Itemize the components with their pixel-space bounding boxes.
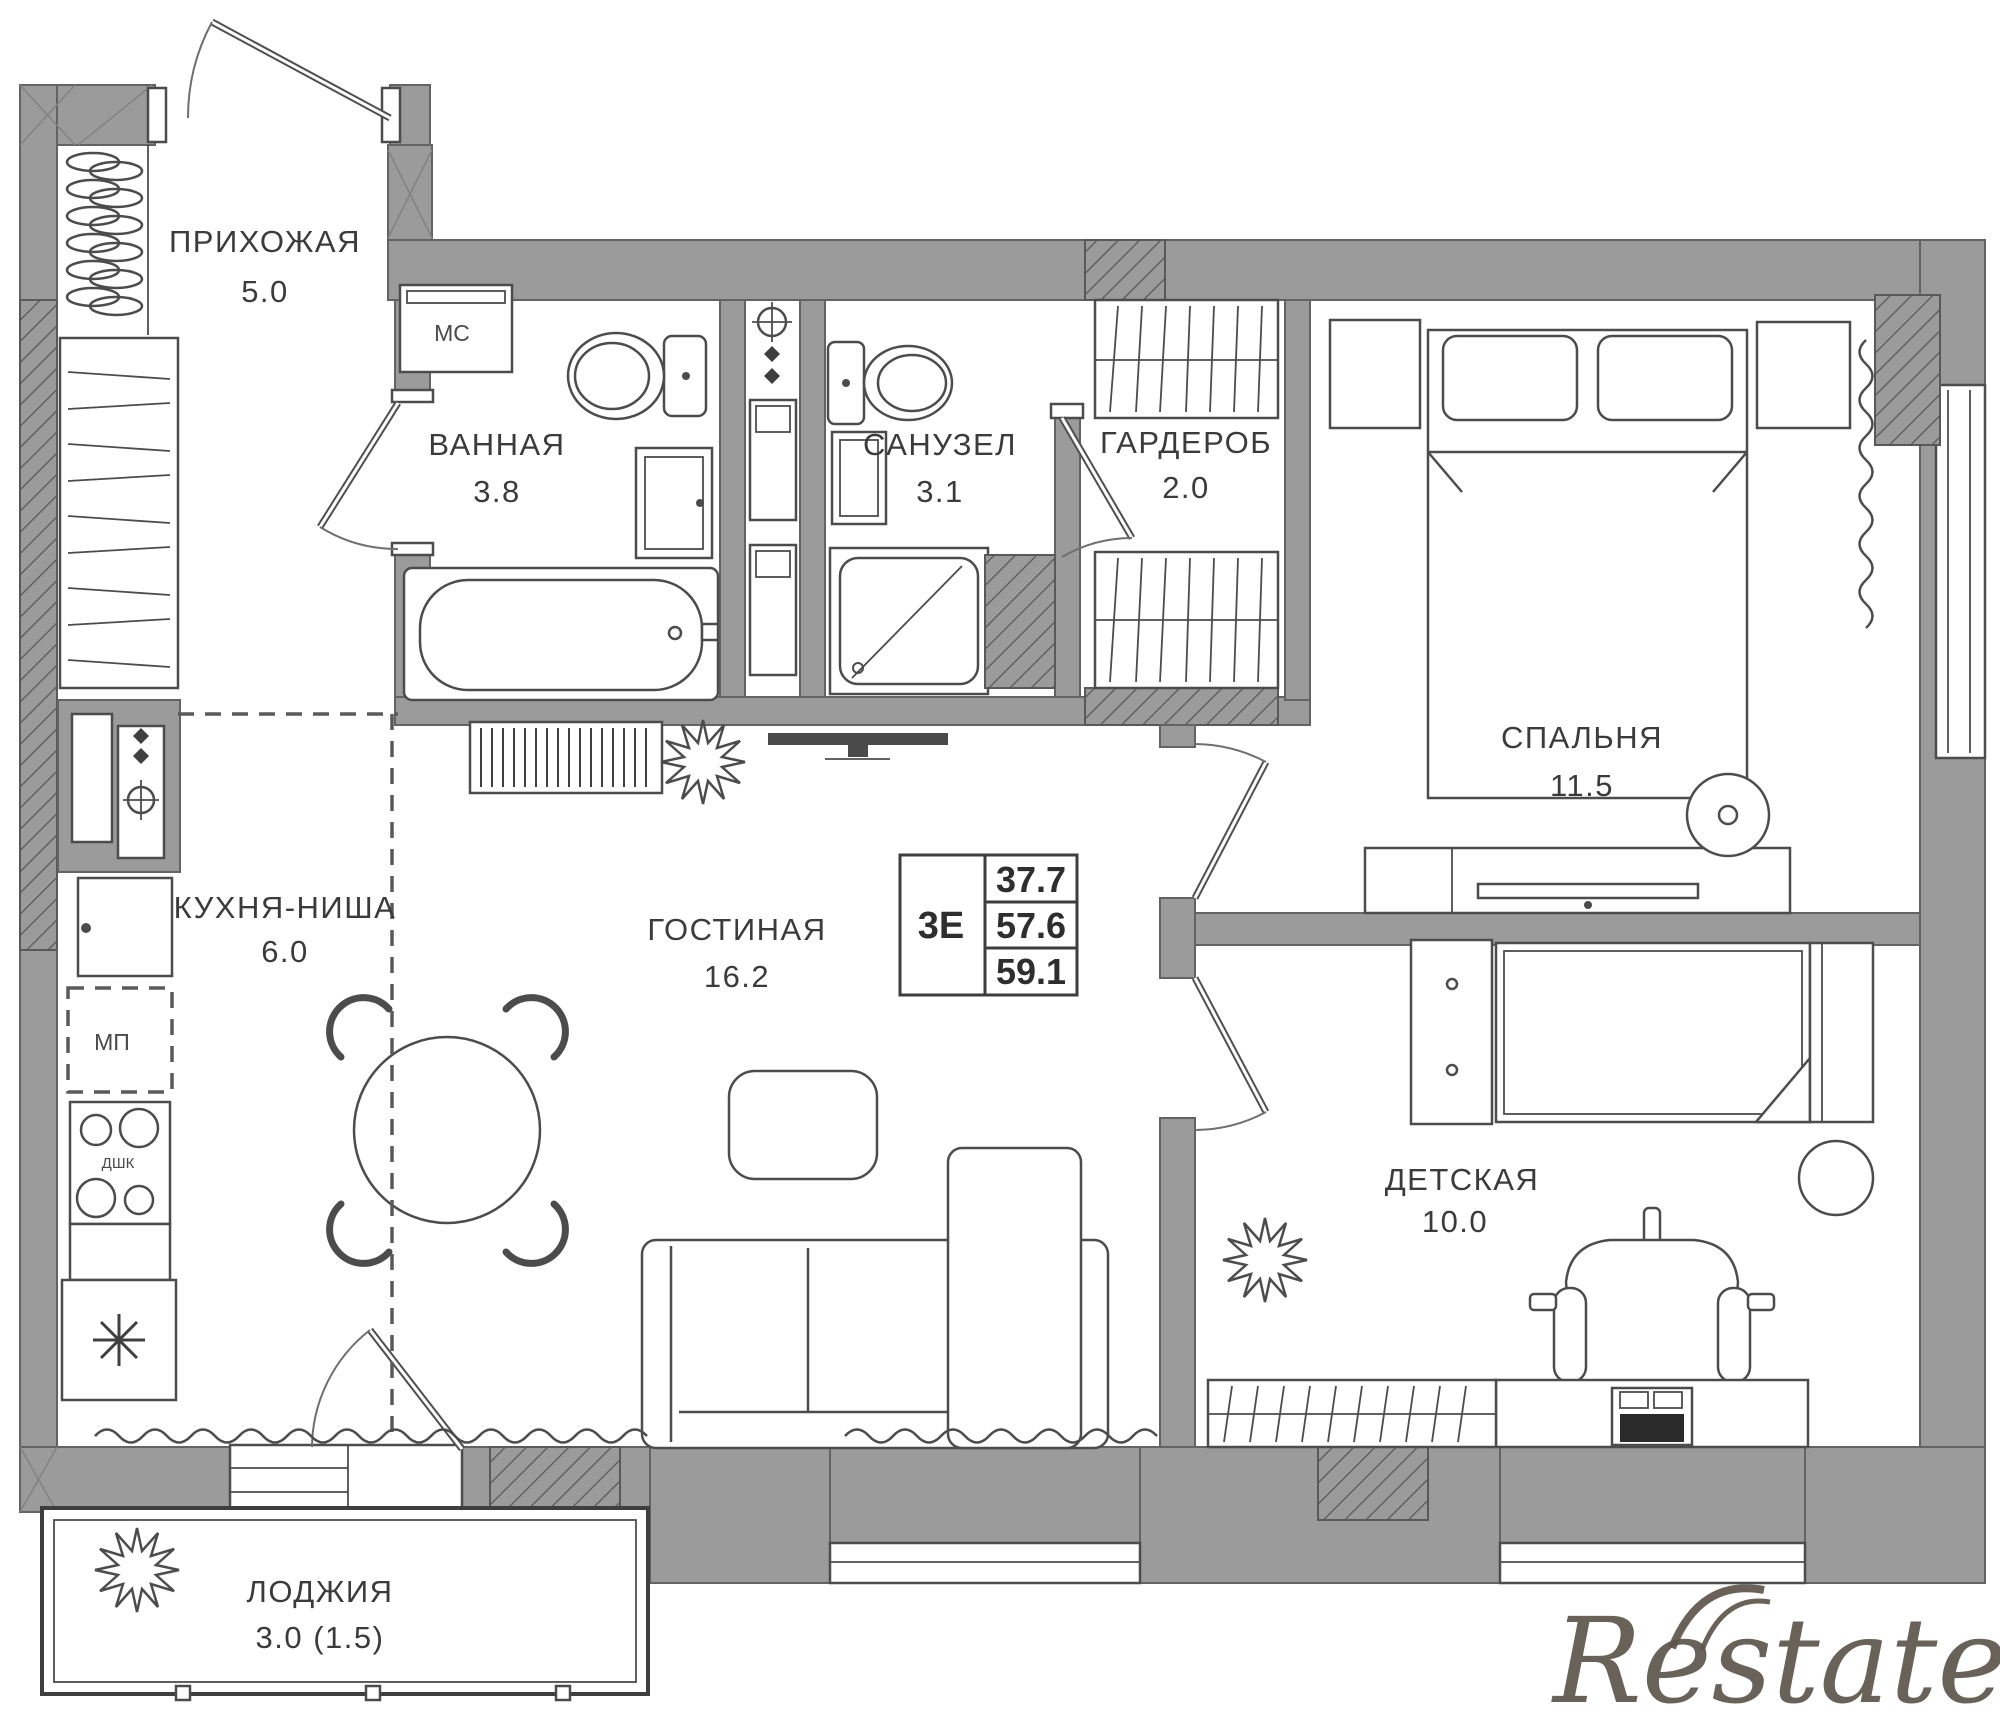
room-label-bedroom: СПАЛЬНЯ	[1501, 720, 1663, 755]
area-value-living: 37.7	[996, 859, 1066, 900]
door-jamb	[392, 390, 433, 402]
room-area-kitchen: 6.0	[261, 934, 309, 969]
wall-living-east-b	[1160, 898, 1195, 978]
wall-bottom-right	[1805, 1447, 1985, 1583]
pillow-icon	[1443, 336, 1577, 420]
oven-label: ДШК	[102, 1155, 135, 1172]
wall-bedroom-kids-divider	[1195, 913, 1920, 945]
room-area-loggia: 3.0 (1.5)	[256, 1620, 385, 1655]
pillow-icon	[1598, 336, 1732, 420]
tv-icon	[1478, 884, 1698, 898]
kitchen-cabinet	[78, 878, 172, 976]
loggia-post	[176, 1686, 190, 1700]
headboard	[1810, 943, 1873, 1122]
room-area-kids: 10.0	[1422, 1204, 1488, 1239]
area-value-main: 57.6	[996, 905, 1066, 946]
kitchen-drainer	[72, 714, 112, 842]
toilet-icon	[828, 342, 952, 424]
wall-wardrobe-right	[1285, 300, 1310, 700]
room-label-kids: ДЕТСКАЯ	[1385, 1162, 1540, 1197]
room-label-loggia: ЛОДЖИЯ	[246, 1574, 393, 1609]
watermark: Restate	[1551, 1588, 2000, 1723]
wall-top	[388, 240, 1985, 300]
wall-living-east-c	[1160, 1118, 1195, 1447]
wall-wardrobe-left	[1055, 418, 1080, 697]
toilet-icon	[568, 333, 706, 419]
wall-shaft-right	[800, 300, 825, 697]
sink-icon	[636, 448, 712, 558]
wall-column-bottom-1	[490, 1447, 620, 1512]
fridge	[62, 1280, 176, 1400]
room-label-living: ГОСТИНАЯ	[647, 912, 826, 947]
wall-bottom-step	[650, 1447, 830, 1583]
room-area-bathroom: 3.8	[473, 474, 521, 509]
entrance-door	[148, 22, 400, 143]
kids-dresser	[1411, 940, 1492, 1124]
kids-wardrobe	[1208, 1380, 1496, 1447]
window-kids	[1500, 1543, 1805, 1583]
room-area-toilet: 3.1	[916, 474, 964, 509]
room-label-bathroom: ВАННАЯ	[428, 427, 565, 462]
wall-shaft-left	[720, 300, 745, 697]
door-jamb	[1051, 404, 1083, 418]
shaft-box	[750, 400, 796, 520]
wall-column-top	[1085, 240, 1165, 300]
apartment-type-label: 3Е	[918, 905, 964, 947]
vent-shaft	[985, 555, 1055, 688]
stove: ДШК	[70, 1102, 170, 1224]
room-area-wardrobe: 2.0	[1162, 470, 1210, 505]
clothes-rail	[1095, 552, 1278, 688]
wall-left-hatched	[20, 300, 57, 950]
clothes-rail	[1095, 300, 1278, 418]
bathtub-icon	[404, 568, 718, 700]
washer-label: МС	[434, 320, 470, 346]
room-label-wardrobe: ГАРДЕРОБ	[1100, 425, 1272, 460]
wall-column-bedroom	[1875, 295, 1940, 445]
wall-bottom-under-window2	[1500, 1447, 1805, 1543]
wall-bottom-under-window1	[830, 1447, 1140, 1543]
room-label-toilet: САНУЗЕЛ	[863, 427, 1017, 462]
room-area-hallway: 5.0	[241, 274, 289, 309]
radiator-grille	[470, 722, 662, 793]
door-jamb	[148, 88, 166, 142]
page: МП ДШК МС	[0, 0, 2000, 1723]
console-tv-stand	[1365, 848, 1790, 913]
cabinet-knob-icon	[81, 923, 91, 933]
floor-plan-canvas: МП ДШК МС	[0, 0, 2000, 1723]
area-value-total: 59.1	[996, 951, 1066, 992]
coffee-table	[729, 1071, 877, 1179]
hall-wardrobe	[60, 338, 178, 688]
loggia-post	[366, 1686, 380, 1700]
info-box: 3Е 37.7 57.6 59.1	[900, 855, 1077, 995]
shaft-box	[750, 545, 796, 675]
window-bedroom	[1936, 385, 1985, 758]
wall-hatched-under-wardrobe	[1085, 688, 1278, 725]
room-area-living: 16.2	[704, 959, 770, 994]
shower-icon	[830, 548, 988, 694]
pouf-icon	[1799, 1141, 1873, 1215]
appliance-slot-label: МП	[94, 1029, 130, 1055]
fan-icon	[1687, 774, 1769, 856]
washing-machine: МС	[400, 285, 512, 372]
loggia-post	[556, 1686, 570, 1700]
desk	[1496, 1380, 1808, 1447]
room-label-hallway: ПРИХОЖАЯ	[169, 224, 361, 259]
nightstand	[1757, 322, 1850, 428]
wall-living-east-a	[1160, 725, 1195, 747]
watermark-text: Restate	[1551, 1592, 2000, 1723]
room-area-bedroom: 11.5	[1550, 768, 1614, 803]
kitchen-counter-end	[70, 1224, 170, 1280]
nightstand	[1330, 320, 1420, 428]
room-label-kitchen: КУХНЯ-НИША	[174, 890, 397, 925]
door-jamb	[392, 543, 433, 555]
window-living	[830, 1543, 1140, 1583]
kids-bed	[1496, 943, 1873, 1122]
wall-column-bottom-2	[1318, 1447, 1428, 1520]
